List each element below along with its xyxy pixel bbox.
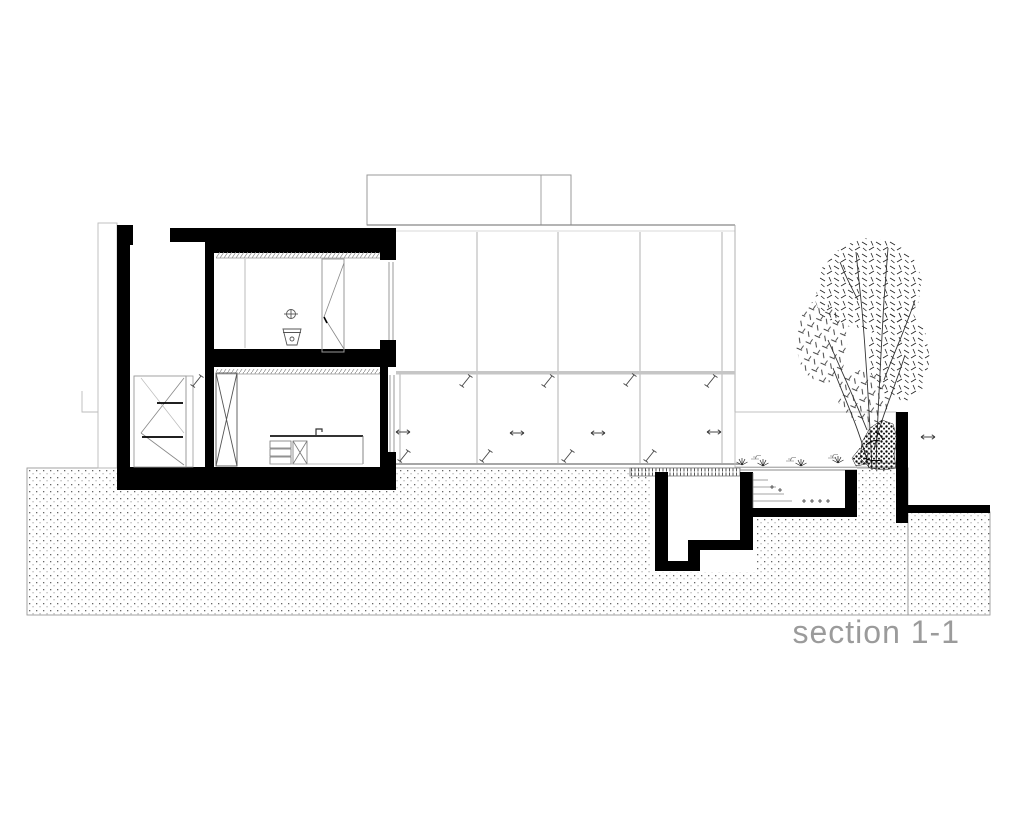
wardrobe-elevation bbox=[216, 373, 237, 466]
kitchen-drawer bbox=[270, 449, 291, 456]
facade-panel-joints bbox=[400, 225, 735, 463]
upper-door-elevation bbox=[322, 259, 344, 352]
dishwasher-panel bbox=[293, 441, 307, 464]
upper-ceiling-hatch bbox=[216, 252, 380, 258]
left-cladding-edge bbox=[98, 223, 117, 468]
upper-floor-interior bbox=[216, 252, 380, 352]
glazing-slash-icon bbox=[644, 450, 657, 463]
tree-canopy bbox=[795, 238, 930, 425]
grating-strip bbox=[630, 468, 740, 476]
ground-floor-interior bbox=[134, 369, 380, 467]
facade-frame-mid bbox=[380, 340, 396, 367]
ground-slab-cut bbox=[117, 467, 396, 490]
grass-tuft-icon bbox=[758, 459, 769, 466]
sliding-arrow-icon bbox=[921, 435, 935, 439]
wc-symbol bbox=[283, 329, 301, 345]
grass-tuft-icon bbox=[833, 456, 844, 463]
section-drawing bbox=[0, 0, 1024, 819]
glazing-slash-icon bbox=[460, 375, 473, 388]
retaining-wall-cut bbox=[896, 412, 908, 523]
sliding-arrow-icon bbox=[510, 431, 524, 435]
court-right-wall-cut bbox=[845, 470, 857, 517]
sliding-arrow-icon bbox=[707, 430, 721, 434]
facade-frame-bottom bbox=[388, 452, 396, 467]
glazing-slash-icon bbox=[191, 375, 204, 388]
faucet-symbol bbox=[316, 429, 322, 436]
shrub bbox=[852, 420, 897, 470]
building-cut bbox=[117, 225, 396, 490]
glazing-slash-icon bbox=[398, 450, 411, 463]
level-marker bbox=[786, 458, 796, 462]
left-wall-cut bbox=[117, 245, 130, 467]
glazing-slash-icon bbox=[542, 375, 555, 388]
sliding-arrow-icon bbox=[396, 430, 410, 434]
kitchen-drawer bbox=[270, 441, 291, 448]
stair-void-door-elevation bbox=[134, 376, 193, 467]
kitchen-counter bbox=[270, 429, 363, 464]
tree bbox=[795, 238, 930, 470]
level-marker bbox=[751, 456, 761, 460]
lower-ceiling-hatch bbox=[216, 369, 380, 374]
mid-floor-slab-cut bbox=[205, 349, 396, 367]
roof-volume-outline bbox=[367, 175, 571, 225]
level-marker bbox=[828, 455, 838, 459]
glazing-slash-icon bbox=[705, 375, 718, 388]
sliding-arrow-icon bbox=[591, 431, 605, 435]
facade-mullion-cut bbox=[380, 367, 388, 467]
court-floor-cut bbox=[753, 508, 857, 517]
background-building-outline bbox=[82, 223, 117, 468]
door-handle-mark bbox=[324, 317, 327, 323]
drawing-title: section 1-1 bbox=[792, 615, 960, 650]
facade-transom-band bbox=[396, 371, 735, 375]
right-ground-stipple bbox=[908, 512, 990, 615]
grass-tuft-icon bbox=[796, 459, 807, 466]
roof-slab-cut bbox=[170, 228, 396, 242]
left-step-outline bbox=[82, 391, 98, 412]
light-fixture-symbol bbox=[284, 310, 298, 319]
kitchen-drawer bbox=[270, 457, 291, 464]
glazing-slash-icon bbox=[562, 450, 575, 463]
glazing-slash-icon bbox=[480, 450, 493, 463]
right-ground-paving-cut bbox=[908, 505, 990, 513]
parapet-cut bbox=[117, 225, 133, 245]
glazing-slash-icon bbox=[624, 374, 637, 387]
facade-frame-top bbox=[380, 245, 396, 260]
section-drawing-canvas: section 1-1 bbox=[0, 0, 1024, 819]
roof-slab-ledge bbox=[205, 242, 396, 253]
